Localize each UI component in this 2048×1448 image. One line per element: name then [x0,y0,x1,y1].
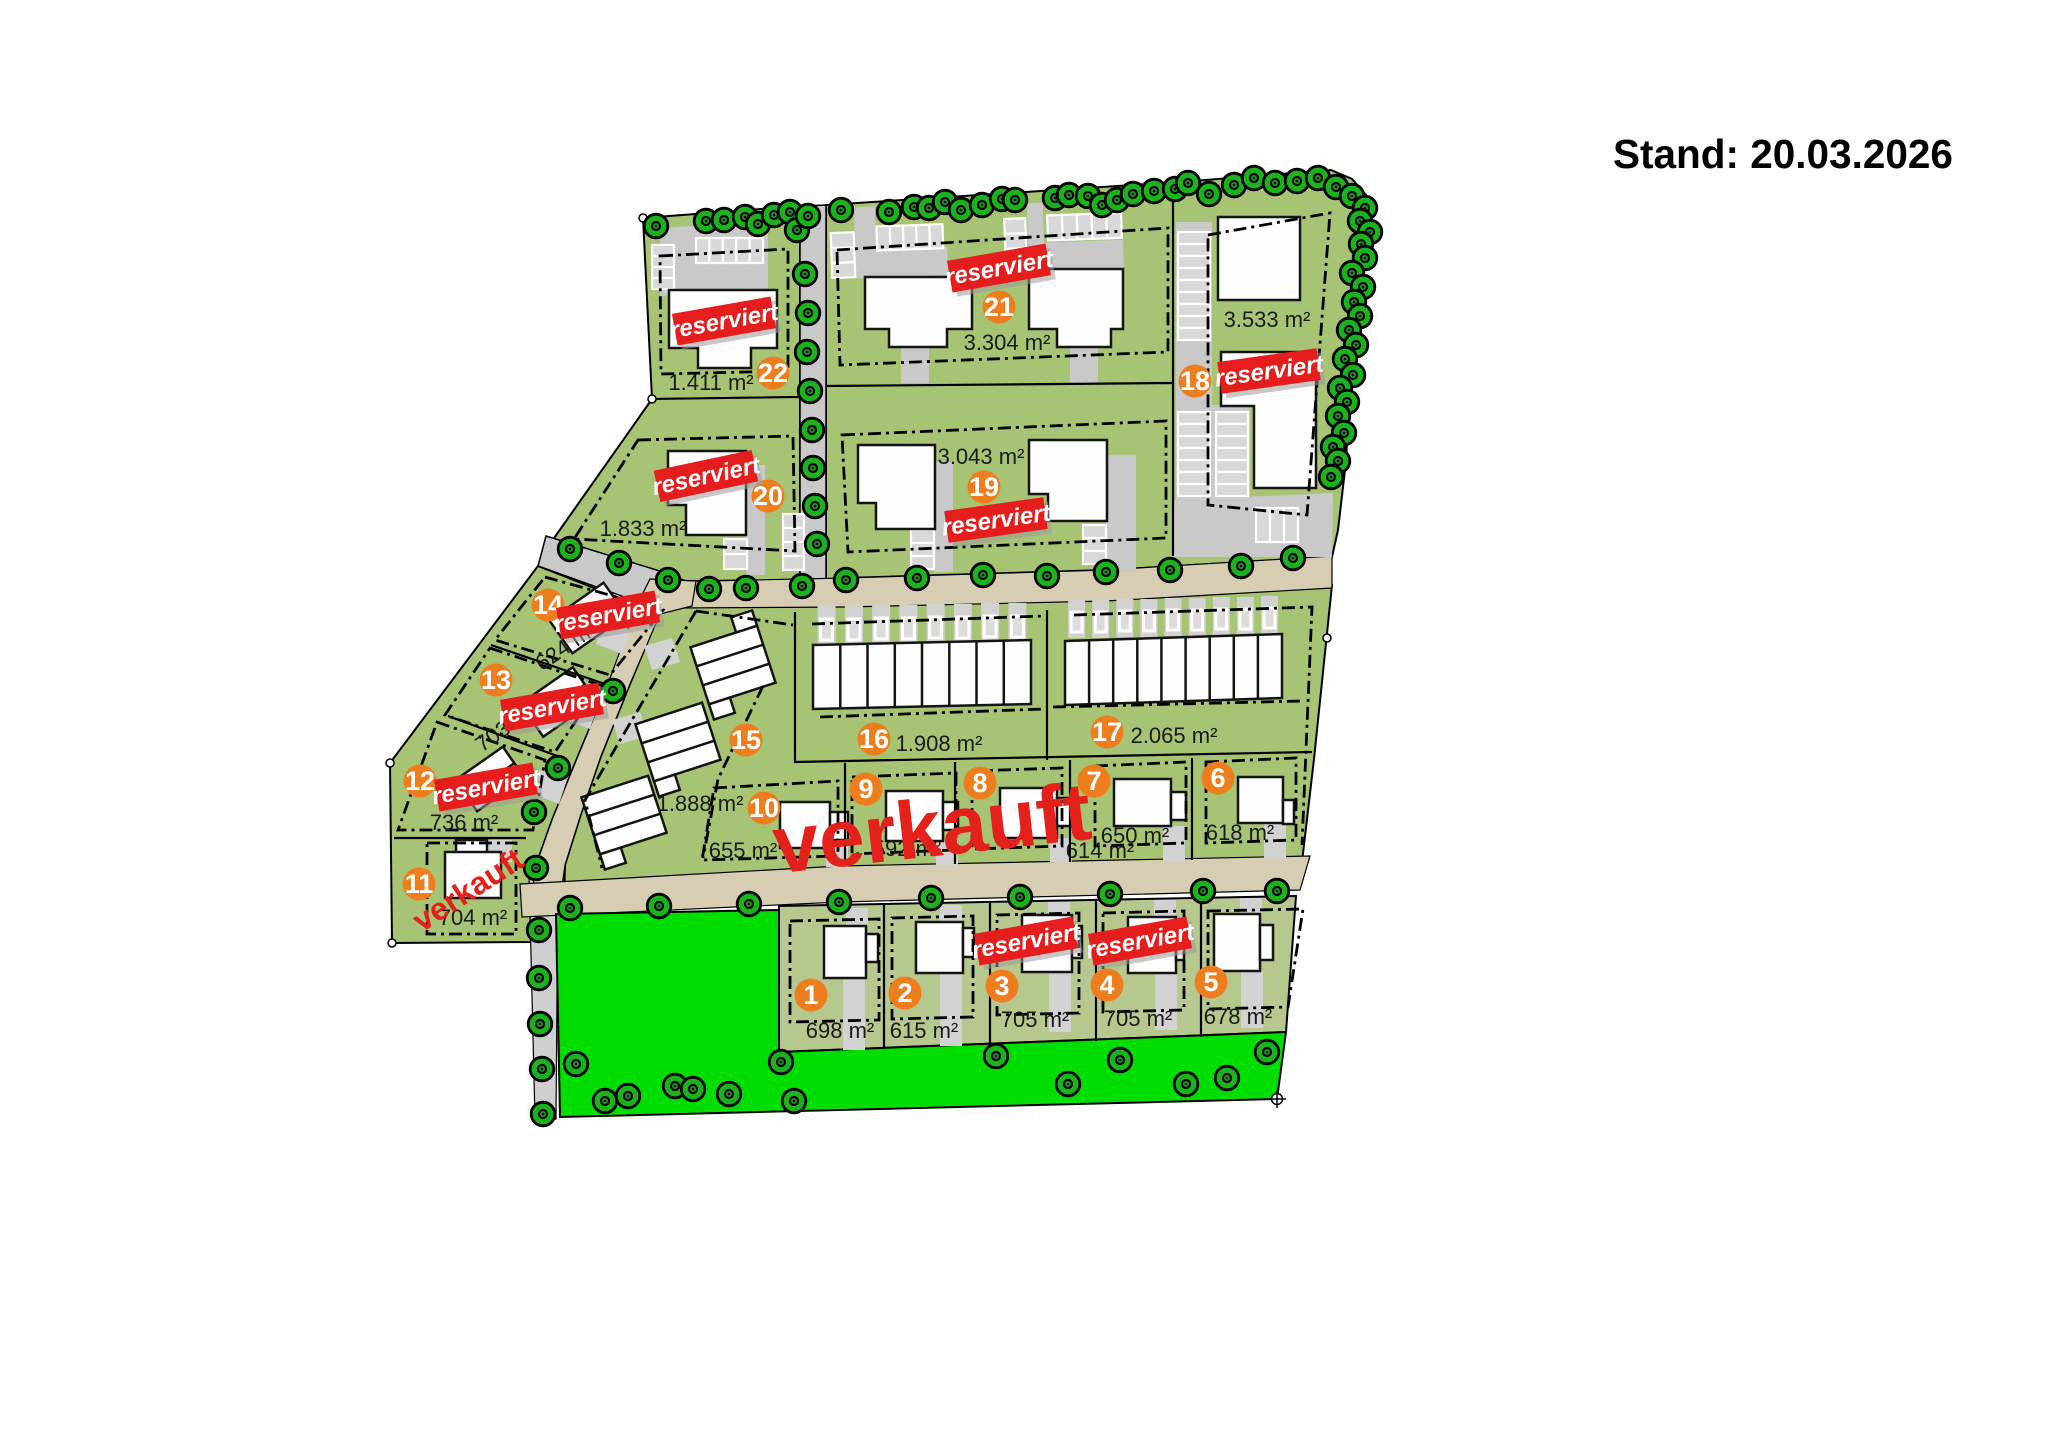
svg-text:22: 22 [758,358,788,388]
svg-text:19: 19 [969,472,999,502]
svg-text:21: 21 [984,292,1014,322]
svg-text:5: 5 [1203,967,1218,997]
svg-text:1.833 m²: 1.833 m² [600,516,687,541]
svg-text:1.888 m²: 1.888 m² [657,791,744,816]
svg-text:705 m²: 705 m² [1001,1007,1069,1032]
svg-text:3.533 m²: 3.533 m² [1224,307,1311,332]
svg-text:18: 18 [1180,366,1210,396]
svg-text:2: 2 [897,978,912,1008]
svg-text:8: 8 [972,768,987,798]
svg-text:1: 1 [803,980,818,1010]
svg-text:615 m²: 615 m² [890,1018,958,1043]
svg-text:3: 3 [994,971,1009,1001]
svg-text:705 m²: 705 m² [1104,1006,1172,1031]
svg-text:1.908 m²: 1.908 m² [896,731,983,756]
svg-text:17: 17 [1092,717,1122,747]
svg-text:618 m²: 618 m² [1206,820,1274,845]
svg-text:2.065 m²: 2.065 m² [1131,723,1218,748]
svg-text:Stand: 20.03.2026: Stand: 20.03.2026 [1613,131,1953,177]
svg-text:655 m²: 655 m² [709,838,777,863]
svg-text:678 m²: 678 m² [1204,1004,1272,1029]
svg-text:9: 9 [858,774,873,804]
svg-text:6: 6 [1210,763,1225,793]
svg-text:4: 4 [1099,970,1114,1000]
svg-text:10: 10 [749,793,779,823]
svg-text:736 m²: 736 m² [430,810,498,835]
svg-text:16: 16 [859,724,889,754]
svg-text:1.411 m²: 1.411 m² [668,370,753,395]
svg-text:15: 15 [731,725,761,755]
svg-text:3.043 m²: 3.043 m² [938,444,1025,469]
svg-text:698 m²: 698 m² [806,1018,874,1043]
svg-text:3.304 m²: 3.304 m² [964,330,1051,355]
svg-text:650 m²: 650 m² [1101,823,1169,848]
svg-text:7: 7 [1086,766,1101,796]
svg-text:13: 13 [481,665,511,695]
svg-text:11: 11 [405,869,434,899]
